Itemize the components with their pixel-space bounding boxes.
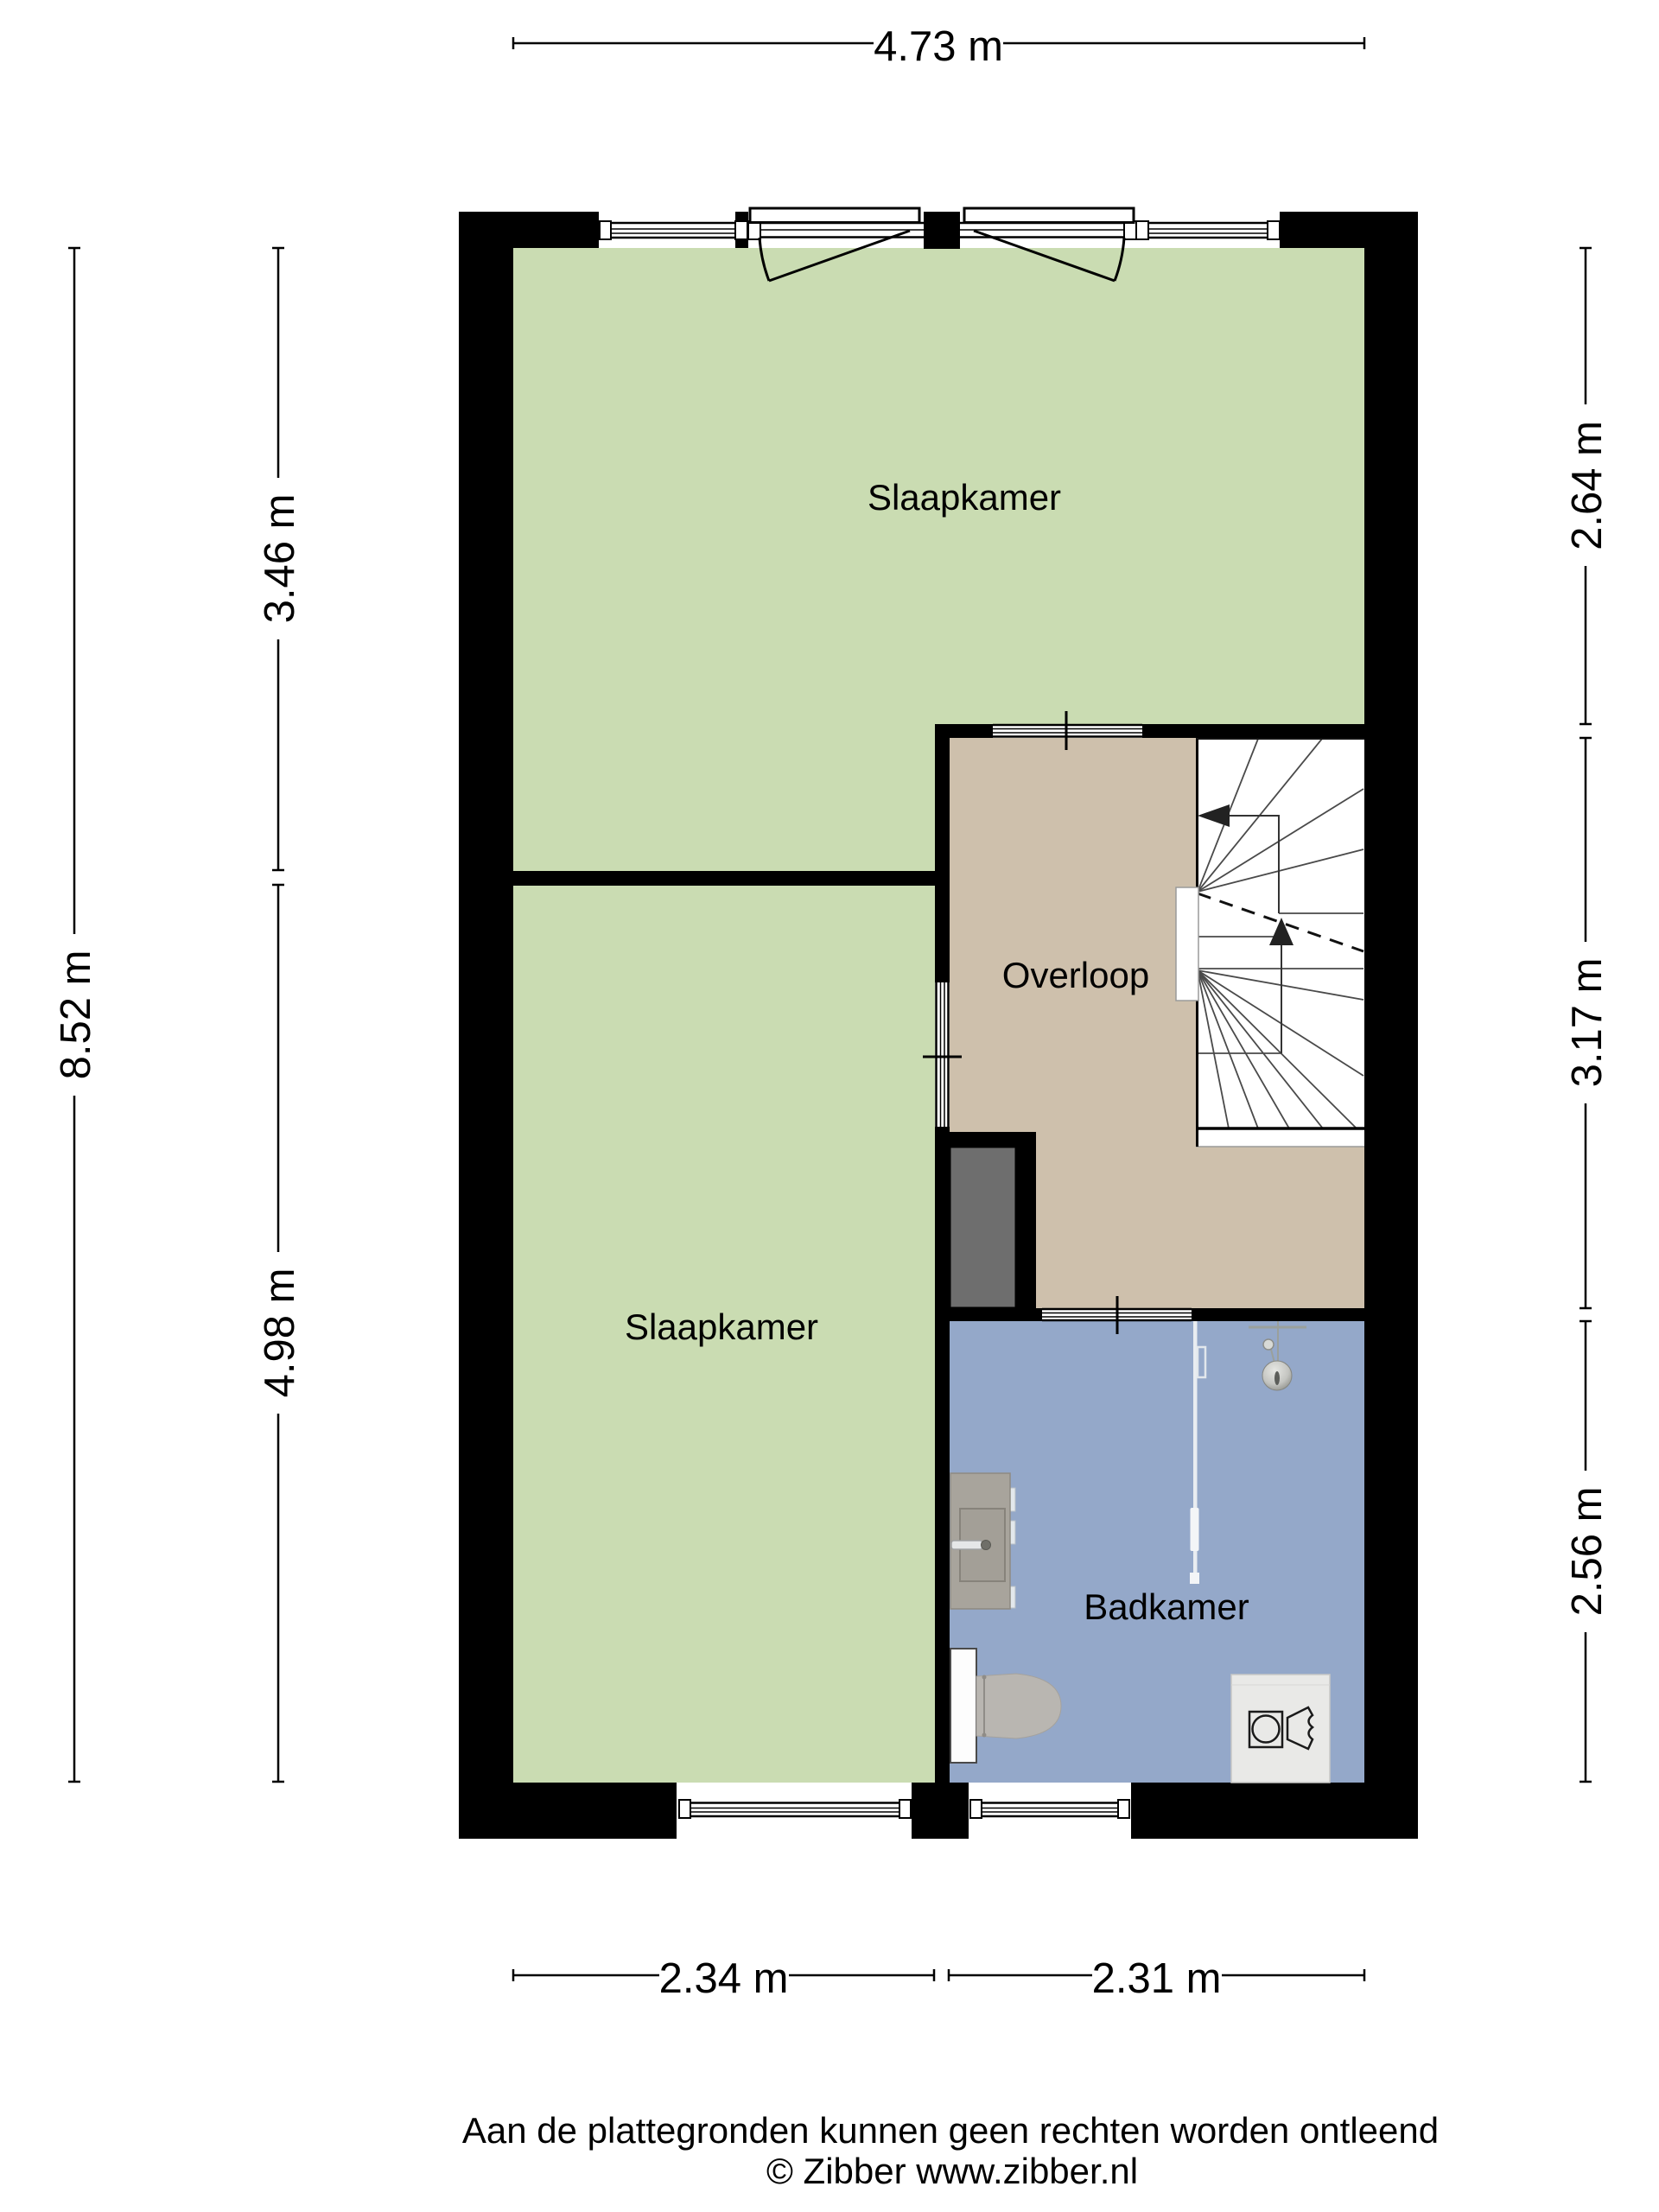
svg-text:2.31 m: 2.31 m <box>1092 1955 1222 2002</box>
svg-text:© Zibber www.zibber.nl: © Zibber www.zibber.nl <box>766 2151 1138 2191</box>
svg-text:3.46 m: 3.46 m <box>257 494 303 624</box>
svg-text:2.64 m: 2.64 m <box>1564 421 1611 550</box>
svg-text:3.17 m: 3.17 m <box>1564 958 1611 1088</box>
svg-text:Slaapkamer: Slaapkamer <box>625 1306 818 1347</box>
svg-text:Aan de plattegronden kunnen ge: Aan de plattegronden kunnen geen rechten… <box>462 2110 1439 2151</box>
svg-text:Slaapkamer: Slaapkamer <box>868 477 1061 518</box>
svg-text:Badkamer: Badkamer <box>1084 1586 1249 1627</box>
svg-text:4.73 m: 4.73 m <box>874 23 1003 70</box>
svg-text:Overloop: Overloop <box>1002 955 1149 995</box>
svg-text:2.34 m: 2.34 m <box>659 1955 789 2002</box>
svg-text:2.56 m: 2.56 m <box>1564 1487 1611 1617</box>
svg-text:4.98 m: 4.98 m <box>257 1268 303 1398</box>
svg-text:8.52 m: 8.52 m <box>53 950 99 1080</box>
